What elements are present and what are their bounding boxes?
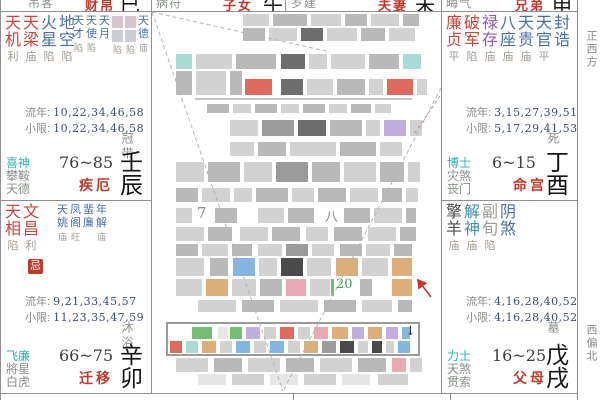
palace-name: 疾厄 xyxy=(79,175,113,195)
mosaic-block xyxy=(206,279,228,296)
star-char: 廉 xyxy=(446,14,462,31)
star-char: 德 xyxy=(138,28,149,41)
mosaic-block xyxy=(375,104,391,113)
mosaic-block xyxy=(176,258,204,276)
star-char: 天 xyxy=(5,14,21,31)
mosaic-block xyxy=(232,244,252,256)
stem-char: 丁 xyxy=(546,152,569,175)
mosaic-block xyxy=(208,162,240,182)
mosaic-block xyxy=(233,104,251,113)
star-column: 天机利 xyxy=(4,14,22,63)
star-column: 解神庙 xyxy=(463,203,481,252)
star-char: 封 xyxy=(554,14,570,31)
palace-name: 夫妻 xyxy=(378,0,408,11)
star-char: 星 xyxy=(41,31,57,48)
toolbar-block xyxy=(230,327,242,339)
mosaic-block xyxy=(272,227,300,241)
main-star-row: 廉贞平破军陷禄存庙八座庙天贵庙天官平封诰 xyxy=(445,14,571,63)
mosaic-block xyxy=(398,300,412,312)
minor-star-row: 天才陷天使陷天月陷陷天德庙 xyxy=(72,15,150,55)
mosaic-block xyxy=(307,79,333,95)
mosaic-block xyxy=(255,104,277,113)
mosaic-block xyxy=(230,120,258,136)
star-status: 旺 xyxy=(71,232,80,242)
liunian-row: 流年: 9,21,33,45,57 xyxy=(25,293,137,309)
star-status: 陷 xyxy=(8,240,19,252)
star-column: 天贵庙 xyxy=(517,14,535,63)
mosaic-block xyxy=(382,188,402,202)
mosaic-block xyxy=(327,28,357,41)
grid-line xyxy=(151,0,152,393)
star-status: 陷 xyxy=(87,43,96,53)
mosaic-block xyxy=(244,162,272,182)
mosaic-block xyxy=(384,120,406,136)
censored-star-block xyxy=(112,30,123,42)
life-stage-label: 死 xyxy=(545,132,562,147)
mosaic-block xyxy=(196,54,232,69)
god-list: 博士灾煞丧门 xyxy=(447,157,471,196)
toolbar-block xyxy=(314,327,328,339)
mosaic-block xyxy=(198,374,226,385)
star-status: 庙 xyxy=(467,240,478,252)
mosaic-block xyxy=(344,162,376,182)
mosaic-block xyxy=(408,162,420,182)
star-char: 羊 xyxy=(446,220,462,237)
mosaic-block xyxy=(260,279,282,296)
star-char: 贞 xyxy=(446,31,462,48)
star-status: 陷 xyxy=(113,45,122,55)
top-palace-cell[interactable]: 岁建夫妻未 xyxy=(286,0,441,11)
god-label: 吊客 xyxy=(28,0,54,11)
mosaic-block xyxy=(214,358,242,372)
age-range: 76~85 xyxy=(59,153,113,172)
palace-cell-jiee[interactable]: 天机利天梁庙火星陷地空陷天才陷天使陷天月陷陷天德庙流年: 10,22,34,46… xyxy=(1,12,151,200)
mosaic-block xyxy=(281,104,299,113)
toolbar-block xyxy=(398,341,410,353)
star-char: 军 xyxy=(464,31,480,48)
liunian-values: 9,21,33,45,57 xyxy=(53,295,136,308)
toolbar-block xyxy=(218,327,228,339)
mosaic-block xyxy=(230,71,242,95)
toolbar-block xyxy=(220,341,232,353)
star-column: 天使陷 xyxy=(85,15,98,55)
star-char: 天 xyxy=(57,204,68,217)
star-status: 庙 xyxy=(26,51,37,63)
mosaic-block xyxy=(273,14,307,26)
stem-branch: 壬辰 xyxy=(120,152,143,198)
mosaic-block xyxy=(202,188,230,202)
toolbar-block xyxy=(192,327,212,339)
star-column: 禄存庙 xyxy=(481,14,499,63)
liunian-row: 流年: 4,16,28,40,52 xyxy=(466,293,578,309)
mosaic-block xyxy=(392,358,406,372)
xiaoxian-label: 小限: xyxy=(25,123,53,135)
mosaic-block xyxy=(342,374,370,385)
toolbar-block xyxy=(246,327,260,339)
mosaic-block xyxy=(281,54,305,69)
main-star-row: 天相陷文昌利 xyxy=(4,203,40,252)
mosaic-block xyxy=(340,142,376,156)
star-column: 蜚廉 xyxy=(82,204,95,242)
mosaic-block xyxy=(288,208,314,223)
mosaic-block xyxy=(366,244,390,256)
star-status: 庙 xyxy=(139,43,148,53)
mosaic-block xyxy=(276,162,308,182)
palace-name: 兄弟 xyxy=(515,0,545,11)
censored-star-block xyxy=(125,30,136,42)
grid-line xyxy=(450,393,451,400)
star-column: 文昌利 xyxy=(22,203,40,252)
god-label: 岁建 xyxy=(291,0,317,11)
star-status: 平 xyxy=(449,51,460,63)
xiaoxian-label: 小限: xyxy=(25,312,53,324)
stem-branch: 丁酉 xyxy=(546,152,569,198)
mosaic-block xyxy=(389,28,415,41)
branch-char: 申 xyxy=(552,0,572,11)
stem-char: 戊 xyxy=(546,345,569,368)
star-char: 昌 xyxy=(23,220,39,237)
center-glyph: 7 xyxy=(197,204,207,222)
god-label: 天德 xyxy=(6,183,30,196)
star-char: 副 xyxy=(482,203,498,220)
grid-line xyxy=(293,393,294,400)
liunian-values: 4,16,28,40,52 xyxy=(494,295,577,308)
toolbar-block xyxy=(186,341,198,353)
star-char: 破 xyxy=(464,14,480,31)
mosaic-block xyxy=(240,227,268,241)
mosaic-block xyxy=(310,279,330,296)
star-char: 天 xyxy=(5,203,21,220)
star-column: 天相陷 xyxy=(4,203,22,252)
star-column: 破军陷 xyxy=(463,14,481,63)
xiaoxian-values: 4,16,28,40,52 xyxy=(494,311,577,324)
star-char: 天 xyxy=(73,15,84,28)
mosaic-block xyxy=(286,244,308,256)
star-char: 贵 xyxy=(518,31,534,48)
mosaic-block xyxy=(334,227,362,241)
mosaic-block xyxy=(400,227,416,241)
branch-char: 未 xyxy=(415,0,435,11)
mosaic-block xyxy=(336,258,358,276)
star-status: 庙 xyxy=(97,232,106,242)
mosaic-block xyxy=(207,104,229,113)
star-char: 存 xyxy=(482,31,498,48)
mosaic-block xyxy=(366,120,380,136)
star-char: 神 xyxy=(464,220,480,237)
mosaic-block xyxy=(303,104,325,113)
branch-char: 辰 xyxy=(120,175,143,198)
star-column: 封诰 xyxy=(553,14,571,63)
branch-char: 卯 xyxy=(120,368,143,391)
mosaic-block xyxy=(362,300,392,312)
god-list: 飞廉將星白虎 xyxy=(6,350,30,389)
mosaic-block xyxy=(331,54,365,69)
star-column: 天梁庙 xyxy=(22,14,40,63)
mosaic-block xyxy=(331,279,334,296)
toolbar-block xyxy=(368,327,382,339)
palace-name: 命宫 xyxy=(513,175,547,195)
mosaic-block xyxy=(286,358,314,372)
red-arrow-icon xyxy=(418,280,431,297)
star-char: 火 xyxy=(41,14,57,31)
toolbar-block xyxy=(358,341,368,353)
mosaic-block xyxy=(233,258,255,276)
star-char: 凤 xyxy=(70,204,81,217)
mosaic-block xyxy=(280,300,318,312)
mosaic-block xyxy=(378,374,408,385)
star-column: 天德庙 xyxy=(137,15,150,55)
age-range: 16~25 xyxy=(492,346,546,365)
age-range: 66~75 xyxy=(59,346,113,365)
toolbar-block xyxy=(170,341,182,353)
god-label: 丧门 xyxy=(447,183,471,196)
mosaic-block xyxy=(312,162,340,182)
mosaic-block xyxy=(234,188,252,202)
mosaic-block xyxy=(176,71,192,95)
down-arrow-icon[interactable]: ↓ xyxy=(405,324,416,339)
top-palace-cell[interactable]: 病符子女午 xyxy=(152,0,285,11)
toolbar-block xyxy=(280,327,294,339)
xiaoxian-values: 5,17,29,41,53 xyxy=(494,122,577,135)
star-status: 利 xyxy=(8,51,19,63)
mosaic-block xyxy=(262,120,294,136)
star-char: 煞 xyxy=(500,220,516,237)
star-column: 天官平 xyxy=(535,14,553,63)
mosaic-block xyxy=(361,28,385,41)
star-status: 陷 xyxy=(485,240,496,252)
mosaic-block xyxy=(243,28,265,41)
xiaoxian-label: 小限: xyxy=(466,312,494,324)
mosaic-block xyxy=(410,120,422,136)
mosaic-block xyxy=(369,79,383,95)
star-column: 天月 xyxy=(98,15,111,55)
god-list: 喜神攀鞍天德 xyxy=(6,157,30,196)
mosaic-block xyxy=(380,142,402,156)
mosaic-block xyxy=(292,188,314,202)
mosaic-block xyxy=(403,14,419,26)
mosaic-block xyxy=(392,258,412,276)
branch-char: 酉 xyxy=(546,175,569,198)
star-column: 副旬陷 xyxy=(481,203,499,252)
palace-name: 迁移 xyxy=(79,368,113,388)
top-palace-cell[interactable]: 吊客财帛巳 xyxy=(1,0,151,11)
mosaic-block xyxy=(318,188,346,202)
palace-cell-ming[interactable]: 廉贞平破军陷禄存庙八座庙天贵庙天官平封诰流年: 3,15,27,39,51小限:… xyxy=(442,12,577,200)
mosaic-block xyxy=(258,208,284,223)
compass-label-west: 正西方 xyxy=(583,30,599,69)
censored-star-block xyxy=(125,16,136,28)
star-char: 才 xyxy=(73,28,84,41)
compass-label-west-north: 西偏北 xyxy=(583,324,599,363)
mosaic-block xyxy=(286,279,306,296)
toolbar-block xyxy=(322,341,336,353)
toolbar-block xyxy=(386,341,394,353)
mosaic-block xyxy=(337,79,365,95)
star-status: 陷 xyxy=(62,51,73,63)
star-char: 文 xyxy=(23,203,39,220)
mosaic-block xyxy=(210,258,228,276)
mosaic-block xyxy=(176,162,204,182)
star-char: 阴 xyxy=(500,203,516,220)
mosaic-block xyxy=(410,358,422,372)
mosaic-block xyxy=(208,227,232,241)
mosaic-block xyxy=(374,208,402,223)
palace-cell-fumu[interactable]: 擎羊庙解神庙副旬陷阴煞流年: 4,16,28,40,52小限: 4,16,28,… xyxy=(442,201,577,393)
star-char: 旬 xyxy=(482,220,498,237)
stem-branch: 戊戌 xyxy=(546,345,569,391)
center-glyph: 20 xyxy=(336,277,353,292)
mosaic-block xyxy=(394,244,412,256)
star-char: 解 xyxy=(96,217,107,230)
mosaic-block xyxy=(258,142,286,156)
mosaic-block xyxy=(176,188,198,202)
star-char: 座 xyxy=(500,31,516,48)
ziwei-chart: 正西方 西偏北 吊客财帛巳病符子女午岁建夫妻未晦气兄弟申 天机利天梁庙火星陷地空… xyxy=(0,0,600,400)
liunian-label: 流年: xyxy=(25,296,53,308)
star-char: 月 xyxy=(99,28,110,41)
mosaic-block xyxy=(329,104,347,113)
star-char: 解 xyxy=(464,203,480,220)
palace-name: 财帛 xyxy=(85,0,115,11)
mosaic-block xyxy=(243,14,269,26)
star-status: 庙 xyxy=(485,51,496,63)
star-char: 天 xyxy=(138,15,149,28)
star-char: 诰 xyxy=(554,31,570,48)
mosaic-block xyxy=(176,358,208,372)
palace-cell-qianyi[interactable]: 天相陷文昌利天姚庙凤阁旺蜚廉年解庙流年: 9,21,33,45,57小限: 11… xyxy=(1,201,151,393)
star-char: 年 xyxy=(96,204,107,217)
mosaic-block xyxy=(215,208,237,223)
mosaic-block xyxy=(358,358,386,372)
star-char: 官 xyxy=(536,31,552,48)
star-status: 利 xyxy=(26,240,37,252)
toolbar-block xyxy=(352,327,364,339)
top-palace-cell[interactable]: 晦气兄弟申 xyxy=(442,0,577,11)
mosaic-block xyxy=(306,227,328,241)
star-char: 机 xyxy=(5,31,21,48)
star-char: 使 xyxy=(86,28,97,41)
star-char: 禄 xyxy=(482,14,498,31)
star-column: 凤阁旺 xyxy=(69,204,82,242)
toolbar-block xyxy=(288,341,300,353)
star-status: 庙 xyxy=(503,51,514,63)
mosaic-block xyxy=(259,258,277,276)
mosaic-block xyxy=(256,188,288,202)
mosaic-block xyxy=(281,258,303,276)
star-status: 平 xyxy=(539,51,550,63)
center-glyph: 八 xyxy=(325,206,338,225)
star-status: 陷 xyxy=(467,51,478,63)
god-label: 白虎 xyxy=(6,376,30,389)
mosaic-block xyxy=(242,300,274,312)
star-char: 蜚 xyxy=(83,204,94,217)
mosaic-block xyxy=(176,208,192,223)
star-status: 陷 xyxy=(126,45,135,55)
stem-char: 壬 xyxy=(120,152,143,175)
star-status: 庙 xyxy=(58,232,67,242)
star-char: 姚 xyxy=(57,217,68,230)
mosaic-block xyxy=(270,374,298,385)
liunian-row: 流年: 3,15,27,39,51 xyxy=(466,104,578,120)
age-range: 6~15 xyxy=(492,153,536,172)
liunian-values: 3,15,27,39,51 xyxy=(494,106,577,119)
grid-line xyxy=(0,393,578,394)
branch-char: 戌 xyxy=(546,368,569,391)
palace-name: 子女 xyxy=(223,0,253,11)
mosaic-block xyxy=(406,188,418,202)
star-column: 阴煞 xyxy=(499,203,517,252)
mosaic-block xyxy=(360,279,372,296)
mosaic-block xyxy=(176,244,198,256)
stem-branch: 辛卯 xyxy=(120,345,143,391)
mosaic-block xyxy=(312,244,334,256)
mosaic-block xyxy=(371,14,399,26)
mosaic-block xyxy=(307,258,331,276)
mosaic-block xyxy=(232,374,264,385)
star-column: 天姚庙 xyxy=(56,204,69,242)
mosaic-block xyxy=(406,208,416,223)
toolbar-block xyxy=(304,341,318,353)
god-label: 晦气 xyxy=(446,0,472,11)
god-label: 病符 xyxy=(156,0,182,11)
toolbar-block xyxy=(236,341,250,353)
mosaic-block xyxy=(236,54,276,69)
mosaic-block xyxy=(368,227,396,241)
star-char: 天 xyxy=(536,14,552,31)
mosaic-block xyxy=(380,162,404,182)
star-column: 八座庙 xyxy=(499,14,517,63)
liunian-values: 10,22,34,46,58 xyxy=(53,106,144,119)
minor-star-row: 天姚庙凤阁旺蜚廉年解庙 xyxy=(56,204,108,242)
mosaic-block xyxy=(403,54,421,69)
star-status: 庙 xyxy=(521,51,532,63)
mosaic-block xyxy=(258,244,282,256)
mosaic-block xyxy=(230,142,254,156)
star-char: 梁 xyxy=(23,31,39,48)
star-status: 陷 xyxy=(44,51,55,63)
god-list: 力士天煞贯索 xyxy=(447,350,471,389)
mosaic-block xyxy=(176,54,192,69)
star-char: 擎 xyxy=(446,203,462,220)
main-star-row: 擎羊庙解神庙副旬陷阴煞 xyxy=(445,203,517,252)
mosaic-block xyxy=(324,300,356,312)
star-char: 天 xyxy=(99,15,110,28)
liunian-label: 流年: xyxy=(25,107,53,119)
star-column: 陷 xyxy=(111,15,124,55)
mosaic-block xyxy=(320,358,352,372)
liunian-label: 流年: xyxy=(466,296,494,308)
star-column: 廉贞平 xyxy=(445,14,463,63)
star-char: 八 xyxy=(500,14,516,31)
mosaic-block xyxy=(417,79,427,95)
toolbar-block xyxy=(386,327,398,339)
star-column: 火星陷 xyxy=(40,14,58,63)
mosaic-block xyxy=(350,188,378,202)
star-status: 庙 xyxy=(449,240,460,252)
mosaic-block xyxy=(202,244,228,256)
mosaic-block xyxy=(290,142,336,156)
mosaic-block xyxy=(309,54,327,69)
mosaic-block xyxy=(362,258,388,276)
star-column: 年解庙 xyxy=(95,204,108,242)
mosaic-block xyxy=(392,279,412,296)
mosaic-block xyxy=(281,79,303,95)
mosaic-block xyxy=(248,358,280,372)
hua-ji-badge: 忌 xyxy=(28,259,43,274)
palace-name: 父母 xyxy=(513,368,547,388)
star-status: 陷 xyxy=(74,43,83,53)
star-char: 天 xyxy=(86,15,97,28)
